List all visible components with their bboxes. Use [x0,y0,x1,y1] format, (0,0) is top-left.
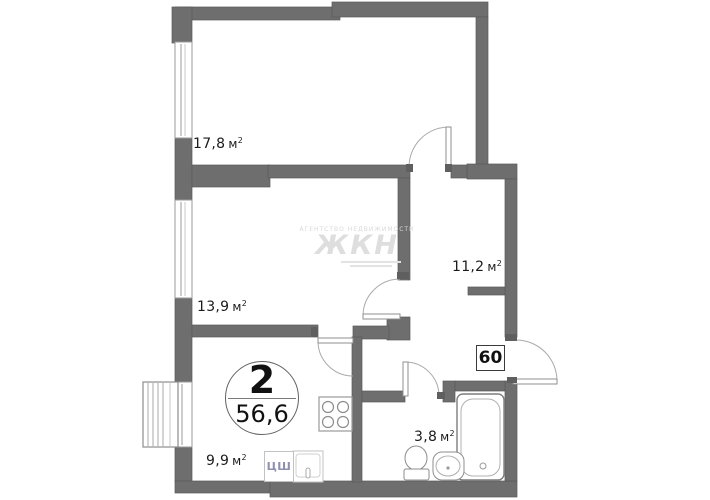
apartment-summary-badge: 2 56,6 [225,361,299,435]
toilet-icon [404,446,429,480]
badge-divider [228,398,296,399]
rooms-count: 2 [226,358,298,402]
sink-icon [433,452,464,480]
label-bathroom-area: 3,8м2 [414,429,455,445]
washing-machine-icon [293,451,323,482]
closet-label-box: ЦШ [264,451,294,482]
door-bathroom-icon [403,362,445,399]
wall-kitchen-right [352,337,362,482]
wall-bottom-right [270,481,517,497]
wall-top-left [175,7,340,20]
label-living-room-area: 17,8м2 [193,136,243,152]
apartment-number-plate: 60 [476,345,505,371]
wall-right-mid [505,179,517,337]
wall-bath-top-left [362,391,405,402]
wall-hall-top [467,164,517,179]
window-living-icon [175,42,192,138]
floor-plan-drawing [0,0,710,500]
stove-icon [319,397,352,431]
door-entrance-icon [505,334,557,384]
window-bedroom-icon [175,200,192,298]
wall-kitchen-top [192,325,318,337]
wall-left-corner [172,7,192,43]
label-hallway-area: 11,2м2 [452,259,502,275]
fixtures [293,394,504,482]
wall-right-upper [476,17,488,165]
label-kitchen-area: 9,9м2 [206,453,247,469]
wall-left-1 [175,138,192,200]
floor-plan-canvas: АГЕНТСТВО НЕДВИЖИМОСТИ ЖКН 17,8м2 13,9м2… [0,0,710,500]
wall-left-2 [175,298,192,382]
total-area: 56,6 [226,400,298,428]
wall-door-jamb [451,165,467,178]
wall-bottom-left [175,481,272,493]
door-kitchen-icon [311,327,353,376]
wall-left-3 [175,447,192,482]
wall-partition-thin [268,165,410,178]
wall-partition-thick [192,165,270,187]
balcony-icon [143,382,178,447]
wall-hall-niche [468,287,505,295]
windows [143,42,192,447]
label-bedroom-area: 13,9м2 [197,299,247,315]
wall-corner-block [387,317,410,340]
wall-top-right [332,2,488,17]
wall-right-lower [505,381,517,481]
door-living-icon [406,127,452,172]
wall-corridor [398,178,410,280]
wall-bath-top-right [455,381,505,391]
